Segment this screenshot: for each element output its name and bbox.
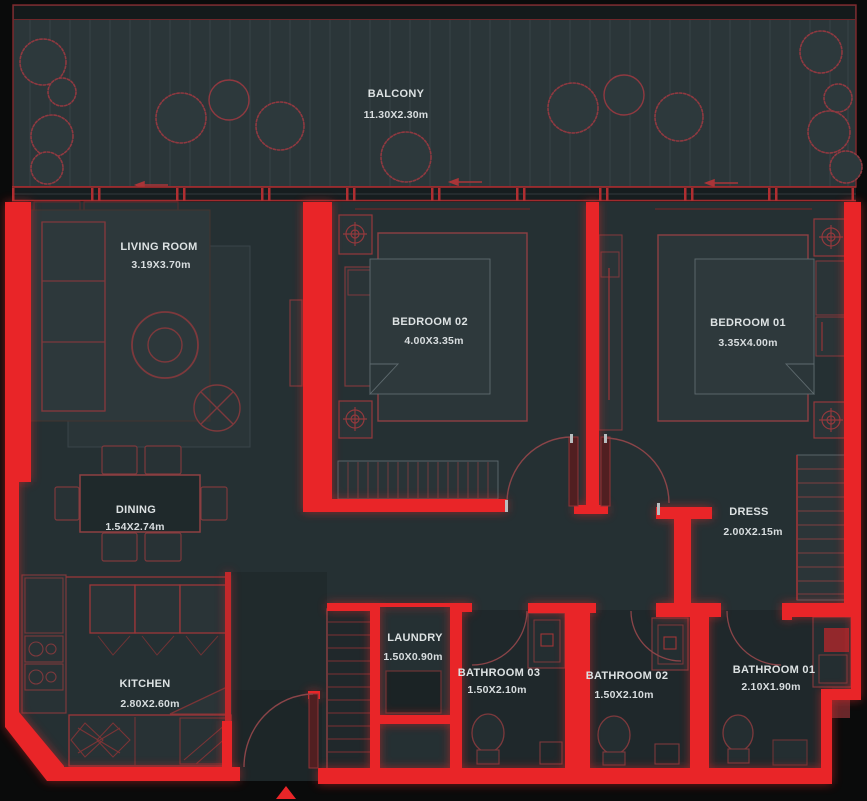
svg-text:LIVING ROOM: LIVING ROOM bbox=[120, 241, 197, 253]
svg-text:LAUNDRY: LAUNDRY bbox=[387, 632, 443, 644]
svg-text:1.50X0.90m: 1.50X0.90m bbox=[383, 651, 442, 663]
svg-text:4.00X3.35m: 4.00X3.35m bbox=[404, 335, 463, 347]
svg-text:BALCONY: BALCONY bbox=[368, 88, 425, 100]
svg-text:BATHROOM 01: BATHROOM 01 bbox=[733, 664, 816, 676]
svg-text:1.54X2.74m: 1.54X2.74m bbox=[105, 521, 164, 533]
svg-text:1.50X2.10m: 1.50X2.10m bbox=[467, 684, 526, 696]
svg-text:2.00X2.15m: 2.00X2.15m bbox=[723, 526, 782, 538]
svg-text:DINING: DINING bbox=[116, 504, 156, 516]
svg-text:BATHROOM 02: BATHROOM 02 bbox=[586, 670, 669, 682]
svg-text:KITCHEN: KITCHEN bbox=[120, 678, 171, 690]
svg-text:11.30X2.30m: 11.30X2.30m bbox=[364, 109, 429, 121]
svg-text:1.50X2.10m: 1.50X2.10m bbox=[594, 689, 653, 701]
svg-text:3.35X4.00m: 3.35X4.00m bbox=[718, 337, 777, 349]
svg-text:BEDROOM 02: BEDROOM 02 bbox=[392, 316, 468, 328]
svg-text:BATHROOM 03: BATHROOM 03 bbox=[458, 667, 541, 679]
svg-text:BEDROOM 01: BEDROOM 01 bbox=[710, 317, 786, 329]
svg-text:3.19X3.70m: 3.19X3.70m bbox=[131, 259, 190, 271]
svg-text:2.80X2.60m: 2.80X2.60m bbox=[120, 698, 179, 710]
svg-text:DRESS: DRESS bbox=[729, 506, 768, 518]
svg-text:2.10X1.90m: 2.10X1.90m bbox=[741, 681, 800, 693]
